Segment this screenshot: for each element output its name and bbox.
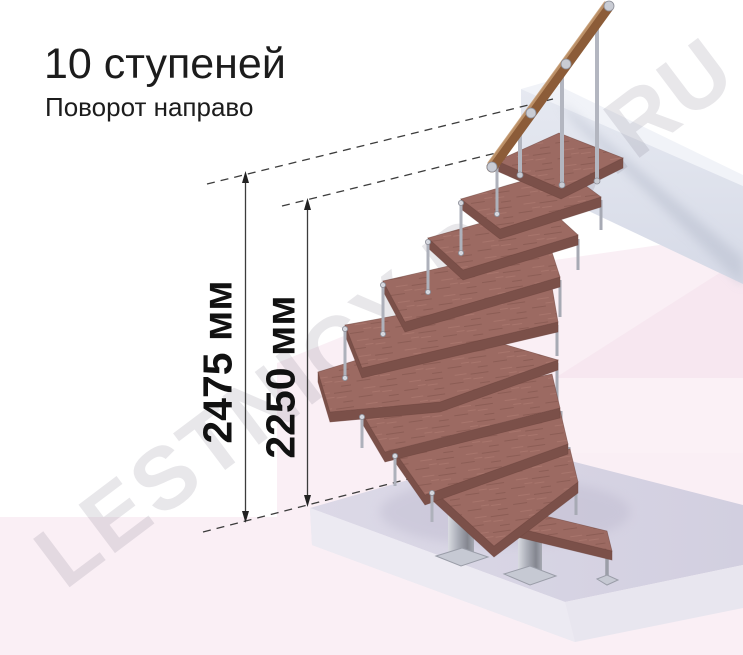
base-plate — [597, 575, 618, 585]
rail-end-cap — [604, 1, 614, 11]
rail-connector — [561, 59, 571, 69]
rail-end-cap — [487, 162, 497, 172]
page-subtitle: Поворот направо — [45, 92, 253, 123]
dimension-label-total-height: 2475 мм — [195, 280, 242, 443]
dimension-label-steps-height: 2250 мм — [258, 295, 305, 458]
base-plate — [504, 566, 556, 585]
staircase-scheme: LESTNICY-PRO.RU — [0, 0, 743, 655]
base-plate — [436, 548, 488, 566]
page-title: 10 ступеней — [44, 42, 286, 87]
rail-connector — [526, 108, 536, 118]
